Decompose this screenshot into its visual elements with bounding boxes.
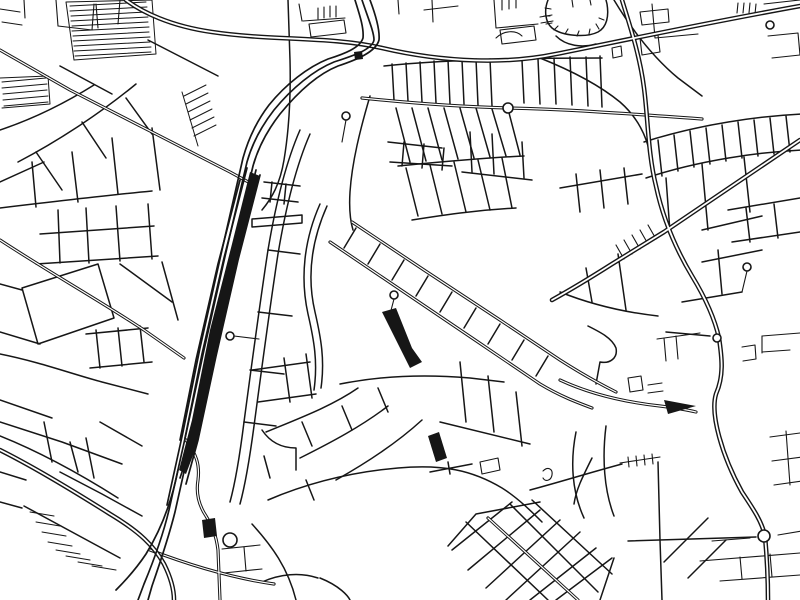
streets: [311, 206, 327, 388]
streets: [0, 354, 148, 394]
minor-streets: [743, 3, 744, 13]
minor-streets: [480, 458, 500, 474]
minor-streets: [764, 0, 800, 4]
minor-streets: [772, 457, 800, 461]
hatch-blocks: [73, 32, 149, 36]
streets: [738, 122, 742, 158]
streets: [0, 332, 40, 344]
streets: [412, 108, 426, 161]
streets: [576, 174, 580, 212]
streets: [744, 157, 750, 212]
minor-streets: [620, 457, 660, 463]
streets: [586, 268, 592, 302]
streets: [444, 108, 458, 159]
streets: [702, 216, 762, 230]
streets: [570, 57, 572, 105]
streets: [624, 168, 628, 204]
streets: [72, 152, 78, 202]
streets: [464, 308, 476, 328]
streets: [618, 254, 626, 310]
streets: [0, 472, 26, 480]
minor-streets: [770, 554, 772, 577]
streets: [152, 128, 160, 190]
roundabout-icon: [766, 21, 774, 29]
hatch-blocks: [184, 85, 206, 96]
streets: [252, 524, 296, 600]
streets: [262, 198, 298, 202]
streets: [416, 276, 428, 296]
streets: [36, 152, 62, 190]
hatch-blocks: [4, 102, 48, 106]
minor-streets: [742, 271, 747, 292]
minor-streets: [299, 4, 302, 21]
railway-tracks: [148, 0, 379, 600]
major-roads-core: [126, 0, 800, 61]
streets: [728, 198, 800, 210]
minor-streets: [612, 46, 622, 58]
streets: [412, 208, 516, 220]
streets: [538, 59, 540, 104]
streets: [36, 256, 158, 264]
minor-streets: [720, 575, 800, 581]
minor-streets: [648, 391, 663, 393]
minor-streets: [24, 0, 25, 18]
streets: [770, 118, 774, 154]
hatch-blocks: [71, 17, 148, 21]
streets: [344, 228, 356, 248]
streets: [428, 108, 442, 160]
minor-streets: [224, 569, 262, 573]
streets: [300, 406, 388, 458]
streets: [336, 420, 422, 480]
streets: [116, 206, 120, 261]
major-roads-core: [0, 450, 174, 600]
hatch-blocks: [42, 532, 66, 536]
streets: [306, 354, 312, 398]
minor-streets: [309, 20, 346, 37]
streets: [706, 128, 710, 164]
avenues: [330, 242, 592, 408]
streets: [476, 59, 478, 105]
streets: [722, 125, 726, 161]
minor-streets: [770, 433, 800, 437]
filled-blocks: [428, 432, 447, 462]
hatch-blocks: [3, 90, 47, 94]
streets: [522, 142, 524, 178]
minor-streets: [500, 26, 536, 44]
streets: [754, 120, 758, 156]
streets: [660, 540, 662, 600]
streets: [746, 208, 750, 242]
minor-streets: [742, 345, 756, 361]
minor-streets: [676, 336, 678, 359]
streets: [530, 464, 622, 490]
streets: [522, 60, 524, 103]
streets: [392, 64, 394, 100]
filled-blocks: [202, 518, 217, 538]
streets: [718, 250, 722, 294]
hatch-blocks: [48, 542, 72, 546]
minor-streets: [762, 350, 790, 352]
streets: [388, 142, 442, 148]
streets: [556, 36, 596, 46]
streets: [96, 330, 100, 368]
hatch-blocks: [66, 556, 90, 560]
streets: [476, 108, 490, 157]
railway-tracks: [138, 0, 374, 600]
minor-streets: [768, 33, 800, 58]
minor-streets: [543, 468, 552, 480]
streets: [560, 292, 658, 316]
streets: [268, 250, 300, 254]
streets: [530, 548, 596, 600]
minor-streets: [572, 0, 573, 7]
streets: [112, 138, 118, 194]
streets: [420, 62, 422, 102]
minor-streets: [342, 120, 346, 142]
streets: [0, 191, 152, 208]
streets: [82, 122, 106, 158]
filled-blocks: [179, 172, 260, 474]
streets: [306, 480, 314, 500]
hatch-blocks: [186, 93, 208, 104]
streets: [556, 558, 612, 600]
streets: [262, 0, 290, 210]
streets: [430, 165, 442, 214]
streets: [252, 215, 302, 227]
minor-streets: [636, 456, 637, 466]
streets: [460, 362, 466, 422]
streets: [392, 260, 404, 280]
minor-streets: [628, 457, 629, 467]
streets: [378, 388, 388, 412]
streets: [0, 284, 22, 290]
streets: [586, 57, 588, 106]
streets: [86, 208, 89, 263]
streets: [86, 438, 94, 478]
streets: [540, 58, 650, 154]
minor-streets: [700, 553, 800, 561]
streets: [454, 162, 466, 212]
streets: [406, 168, 418, 216]
streets: [774, 204, 778, 238]
streets: [406, 63, 408, 101]
streets: [536, 356, 548, 376]
streets: [732, 232, 800, 242]
streets: [658, 462, 660, 540]
streets: [258, 312, 292, 316]
streets: [340, 376, 504, 384]
minor-streets: [737, 3, 738, 13]
minor-streets: [58, 26, 92, 30]
minor-streets: [589, 29, 590, 34]
streets: [690, 131, 694, 167]
streets: [440, 292, 452, 312]
hatch-blocks: [78, 562, 102, 566]
minor-streets: [749, 3, 750, 13]
hatch-blocks: [92, 566, 116, 570]
minor-streets: [56, 0, 58, 26]
streets: [588, 326, 616, 384]
streets: [58, 210, 60, 263]
streets: [674, 135, 678, 171]
streets: [448, 60, 450, 104]
minor-streets: [424, 6, 458, 10]
streets: [86, 328, 148, 334]
streets: [478, 160, 490, 210]
hatch-blocks: [190, 109, 212, 120]
pond-icon: [223, 533, 237, 547]
streets: [342, 406, 352, 430]
streets: [0, 502, 22, 508]
hatch-blocks: [194, 125, 216, 136]
streets: [440, 422, 530, 444]
streets: [460, 108, 474, 158]
streets: [600, 56, 602, 107]
hatch-blocks: [3, 96, 48, 100]
minor-streets: [664, 338, 666, 361]
hatch-blocks: [71, 12, 147, 16]
streets: [398, 156, 524, 166]
filled-blocks: [382, 308, 422, 368]
streets: [0, 162, 44, 182]
minor-streets: [590, 0, 591, 5]
streets: [488, 376, 494, 432]
streets: [0, 436, 118, 498]
streets: [658, 140, 662, 176]
streets: [434, 61, 436, 103]
streets: [250, 370, 284, 374]
streets: [252, 362, 310, 370]
minor-streets: [398, 0, 399, 14]
minor-streets: [762, 333, 800, 336]
minor-streets: [244, 547, 246, 571]
streets: [0, 400, 52, 418]
streets: [258, 394, 316, 402]
major-roads: [552, 140, 800, 300]
streets: [488, 324, 500, 344]
streets: [148, 204, 152, 259]
hatch-blocks: [73, 37, 150, 41]
hatch-blocks: [72, 22, 148, 26]
minor-streets: [774, 481, 800, 485]
minor-streets: [778, 531, 800, 535]
hatch-blocks: [74, 47, 151, 51]
streets: [468, 510, 540, 570]
streets: [118, 328, 122, 366]
streets: [320, 578, 350, 600]
hatch-blocks: [2, 84, 47, 88]
dead-end-loop-icon: [226, 332, 234, 340]
minor-streets: [596, 24, 599, 29]
major-roads: [0, 450, 174, 600]
hatch-blocks: [192, 117, 214, 128]
streets: [702, 250, 762, 262]
streets: [262, 430, 296, 470]
streets: [516, 392, 522, 446]
streets: [368, 244, 380, 264]
streets: [462, 60, 464, 104]
minor-streets: [740, 557, 742, 579]
streets: [244, 422, 276, 426]
minor-streets: [640, 9, 669, 25]
minor-streets: [652, 454, 653, 464]
streets: [490, 59, 492, 106]
streets: [264, 456, 270, 478]
streets: [162, 262, 178, 320]
streets: [40, 226, 154, 234]
streets: [666, 332, 710, 336]
streets: [100, 422, 142, 446]
roundabout-icon: [758, 530, 770, 542]
hatch-blocks: [188, 101, 210, 112]
minor-streets: [432, 0, 433, 22]
roundabout-icon: [713, 334, 721, 342]
streets: [600, 170, 604, 208]
streets: [302, 422, 312, 446]
streets: [508, 109, 520, 155]
minor-streets: [628, 376, 643, 392]
minor-streets: [644, 455, 645, 465]
minor-streets: [2, 22, 22, 25]
hatch-blocks: [56, 550, 80, 554]
streets: [148, 40, 218, 76]
minor-streets: [648, 383, 662, 385]
streets: [512, 340, 524, 360]
streets: [702, 164, 708, 230]
minor-streets: [599, 18, 604, 20]
streets: [0, 85, 94, 130]
major-roads: [126, 0, 800, 61]
dead-end-loop-icon: [342, 112, 350, 120]
streets: [486, 520, 560, 588]
hatch-blocks: [182, 92, 198, 146]
streets: [546, 0, 608, 35]
streets: [604, 426, 614, 516]
minor-streets: [92, 4, 94, 30]
streets: [32, 162, 36, 207]
streets: [492, 134, 494, 174]
streets: [462, 172, 532, 180]
dead-end-loop-icon: [390, 291, 398, 299]
streets: [492, 109, 506, 156]
streets: [350, 96, 370, 230]
streets: [268, 467, 542, 522]
streets: [682, 292, 742, 302]
hatch-blocks: [74, 42, 150, 46]
map-poster: [0, 0, 800, 600]
roundabout-icon: [743, 263, 751, 271]
minor-streets: [0, 9, 20, 12]
hatch-blocks: [2, 78, 46, 82]
filled-blocks: [354, 51, 363, 60]
streets: [502, 158, 512, 208]
city-street-map: [0, 0, 800, 600]
roundabout-icon: [503, 103, 513, 113]
minor-streets: [786, 431, 790, 485]
